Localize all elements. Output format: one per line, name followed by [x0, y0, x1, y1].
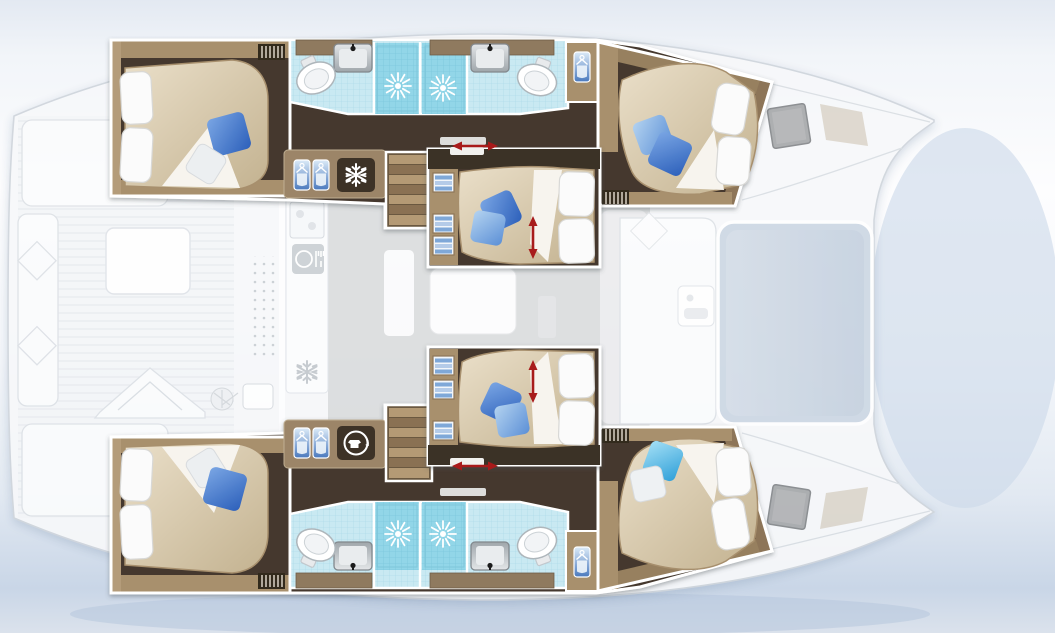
bow-hatch-top: [767, 103, 811, 148]
saloon-table: [430, 268, 516, 334]
sink: [334, 44, 372, 72]
pillow-gray: [629, 465, 667, 503]
sink: [334, 542, 372, 570]
towel-cubby: [433, 421, 454, 440]
wardrobe-hanger-icon: [574, 547, 590, 577]
pillow-blue: [493, 401, 530, 438]
vent-grate-icon: [602, 190, 629, 206]
shower-stall: [374, 43, 420, 114]
cabin-door: [440, 488, 486, 496]
wardrobe-hanger-icon: [294, 428, 310, 458]
galley-cooktop: [290, 202, 324, 238]
towel-cubby: [433, 173, 454, 192]
trampoline-inner: [726, 230, 864, 416]
saloon-divider: [279, 196, 285, 434]
bottom-bathrooms: [289, 502, 568, 588]
towel-cubby: [433, 356, 454, 375]
vent-grate-icon: [602, 427, 629, 443]
staircase-top: [386, 152, 432, 228]
wardrobe-hanger-icon: [313, 160, 329, 190]
bottom-hanging-locker: [566, 531, 598, 591]
staircase-bottom: [386, 405, 432, 481]
towel-cubby: [433, 236, 454, 255]
pillow-white: [558, 218, 595, 263]
bathroom-cabinet: [296, 573, 372, 588]
deck-grate-mat: [250, 256, 280, 356]
pillow-white: [120, 448, 154, 502]
center-aft-cabin: [428, 347, 600, 466]
pillow-white: [120, 504, 154, 560]
wardrobe-hanger-icon: [313, 428, 329, 458]
wardrobe-hanger-icon: [294, 160, 310, 190]
water-tint-bows: [870, 128, 1055, 508]
pillow-white: [120, 71, 154, 125]
deck-plan-canvas: [0, 0, 1055, 633]
deck-plan: [0, 0, 1055, 633]
cockpit-table: [106, 228, 190, 294]
vent-grate-icon: [258, 44, 285, 60]
bottom-corridor-cabinet: [284, 420, 386, 468]
top-corridor-cabinet: [284, 150, 386, 198]
pillow-white: [120, 127, 154, 183]
cabin-door: [440, 137, 486, 145]
pillow-blue: [469, 209, 506, 246]
wardrobe-hanger-icon: [574, 52, 590, 82]
top-bathrooms: [289, 40, 568, 114]
cabin-door: [450, 147, 484, 155]
pillow-white: [558, 171, 595, 216]
saloon-sofa: [384, 250, 414, 336]
fore-hatch-small: [684, 308, 708, 319]
saloon-console: [538, 296, 556, 338]
galley-fork-knife-icon: [292, 244, 324, 274]
fore-console: [678, 286, 714, 326]
bathroom-cabinet: [430, 573, 554, 588]
pillow-white: [715, 136, 751, 186]
burner-icon: [308, 222, 316, 230]
fore-sink: [687, 295, 694, 302]
pillow-white: [715, 447, 751, 497]
center-forward-cabin: [428, 147, 600, 267]
pillow-white: [558, 400, 595, 445]
bow-hatch-bottom: [767, 484, 811, 529]
pillow-white: [558, 353, 595, 398]
towel-cubby: [433, 380, 454, 399]
burner-icon: [296, 210, 304, 218]
cockpit-sink: [243, 384, 273, 409]
vent-grate-icon: [258, 573, 285, 589]
sink: [471, 44, 509, 72]
sink: [471, 542, 509, 570]
top-hanging-locker: [566, 42, 598, 102]
towel-cubby: [433, 214, 454, 233]
